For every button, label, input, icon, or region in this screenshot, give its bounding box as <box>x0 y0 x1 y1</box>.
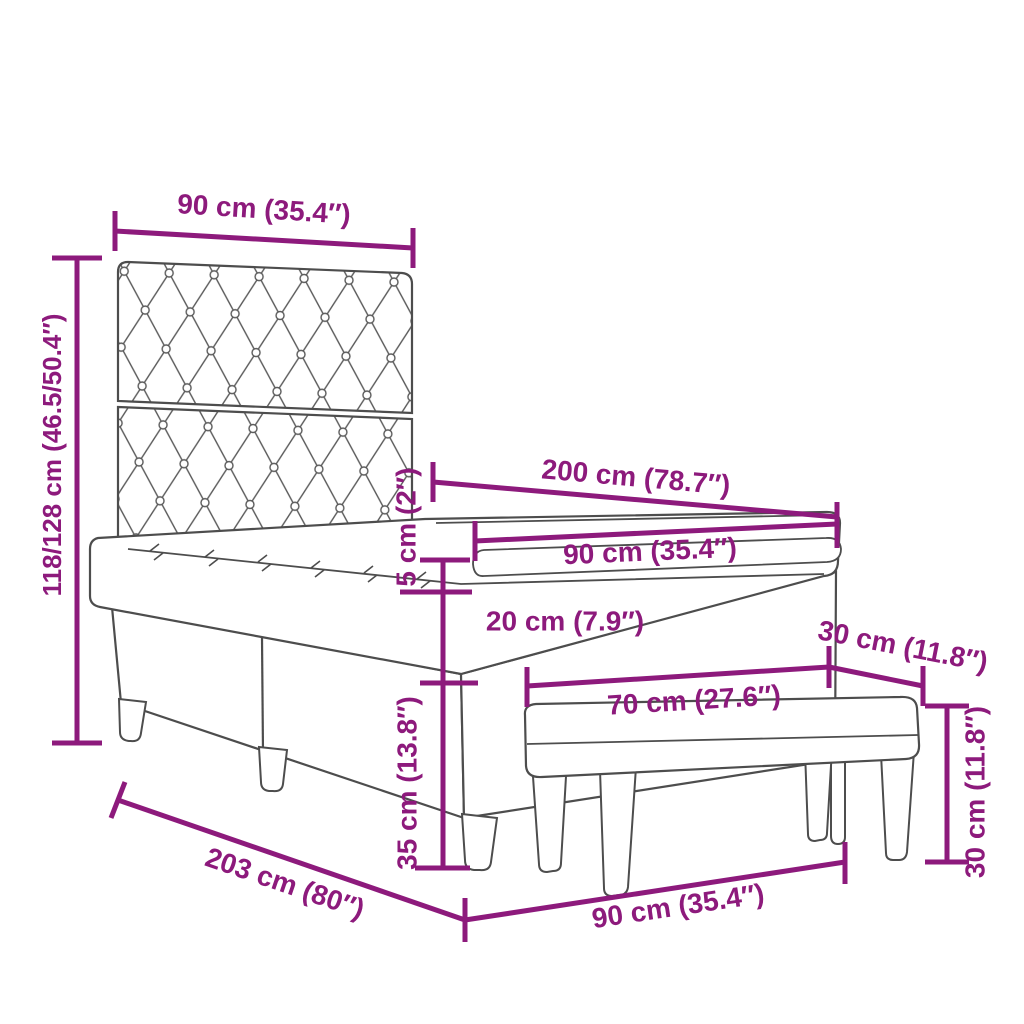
dim-bed-width <box>465 842 845 942</box>
topper-thickness-label: 5 cm (2″) <box>391 467 422 586</box>
headboard-upper-panel <box>118 262 412 413</box>
bench-height-label: 30 cm (11.8″) <box>960 706 991 878</box>
headboard-width-label: 90 cm (35.4″) <box>176 188 351 230</box>
diagram-canvas: 90 cm (35.4″) 118/128 cm (46.5/50.4″) 20… <box>0 0 1024 1024</box>
base-height-label: 35 cm (13.8″) <box>392 696 423 870</box>
bed-leg <box>119 699 146 741</box>
mattress-thickness-label: 20 cm (7.9″) <box>486 606 644 637</box>
bed-leg <box>462 814 497 870</box>
bed-leg <box>259 747 287 791</box>
height-range-label: 118/128 cm (46.5/50.4″) <box>37 314 67 597</box>
bed-leg <box>831 757 845 844</box>
bed-dimensions-diagram: 90 cm (35.4″) 118/128 cm (46.5/50.4″) 20… <box>0 0 1024 1024</box>
bench-leg <box>600 767 636 896</box>
base-seam <box>262 638 263 753</box>
headboard <box>118 262 412 558</box>
frame-length-label: 203 cm (80″) <box>201 841 368 924</box>
bench-leg <box>881 751 914 860</box>
